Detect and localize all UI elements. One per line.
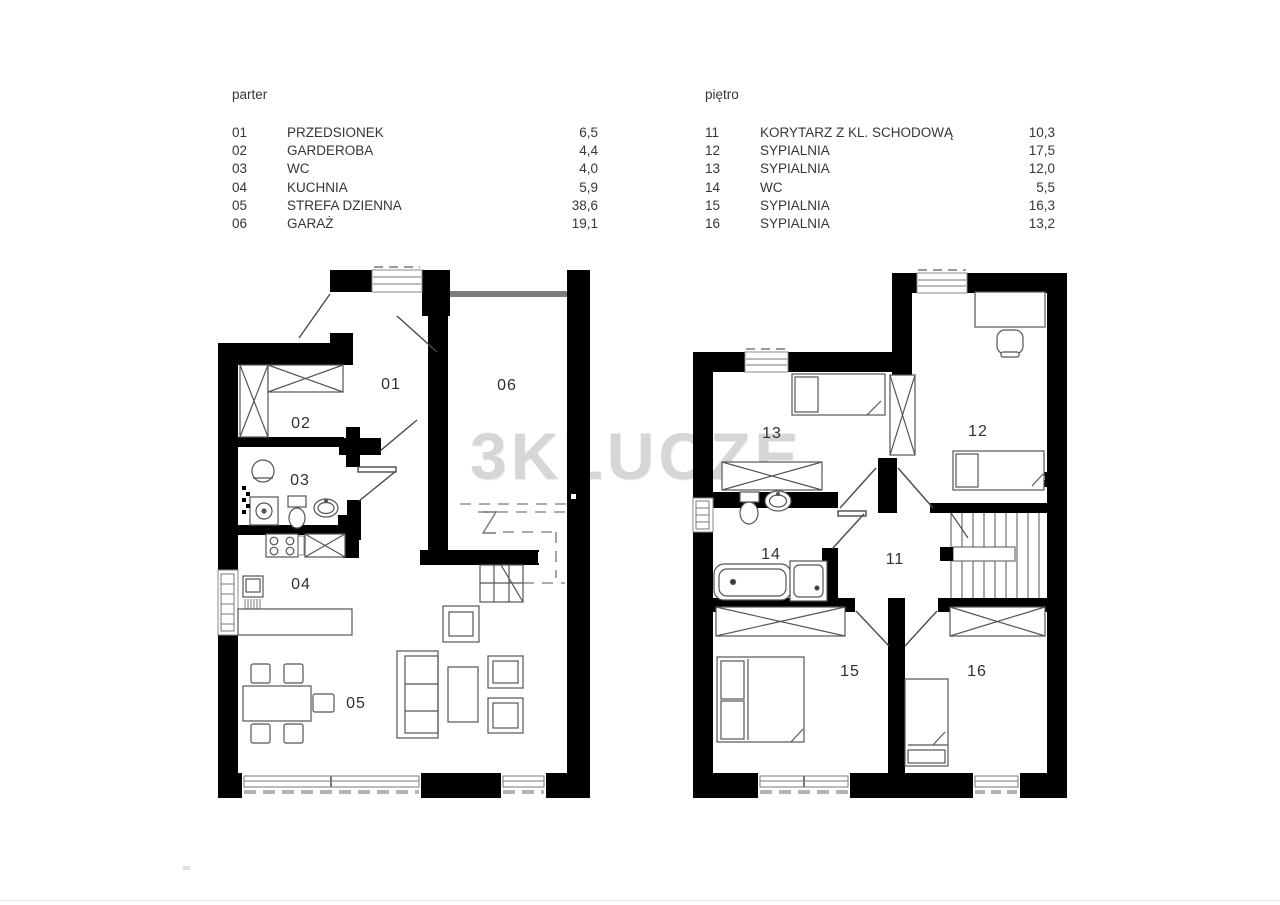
legend-row: 05STREFA DZIENNA38,6 — [232, 197, 598, 215]
legend-row: 01PRZEDSIONEK6,5 — [232, 124, 598, 142]
floorplan-parter: 01 02 03 04 05 06 — [210, 260, 610, 805]
room-label-01: 01 — [381, 376, 401, 393]
garage-door-line — [450, 291, 567, 297]
room-label-05: 05 — [346, 695, 366, 712]
floorplan-page: parter 01PRZEDSIONEK6,5 02GARDEROBA4,4 0… — [0, 0, 1280, 905]
legend-parter-rows: 01PRZEDSIONEK6,5 02GARDEROBA4,4 03WC4,0 … — [232, 124, 598, 233]
legend-pietro: piętro 11KORYTARZ Z KL. SCHODOWĄ10,3 12S… — [705, 88, 1055, 233]
room-label-13: 13 — [762, 425, 782, 442]
legend-row: 02GARDEROBA4,4 — [232, 142, 598, 160]
hatch — [245, 599, 260, 609]
legend-row: 11KORYTARZ Z KL. SCHODOWĄ10,3 — [705, 124, 1055, 142]
radiator-marks — [242, 486, 250, 514]
legend-pietro-title: piętro — [705, 88, 1055, 102]
legend-parter: parter 01PRZEDSIONEK6,5 02GARDEROBA4,4 0… — [232, 88, 598, 233]
legend-row: 06GARAŻ19,1 — [232, 215, 598, 233]
legend-row: 14WC5,5 — [705, 179, 1055, 197]
room-label-06: 06 — [497, 377, 517, 394]
room-label-03: 03 — [290, 472, 310, 489]
room-label-12: 12 — [968, 423, 988, 440]
stairs-parter — [480, 565, 523, 602]
legend-row: 04KUCHNIA5,9 — [232, 179, 598, 197]
doors — [299, 294, 437, 501]
room-label-16: 16 — [967, 663, 987, 680]
room-label-14: 14 — [761, 546, 781, 563]
floorplan-pietro: 11 12 13 14 15 16 — [685, 260, 1075, 805]
legend-row: 03WC4,0 — [232, 160, 598, 178]
legend-row: 15SYPIALNIA16,3 — [705, 197, 1055, 215]
artifact-dot — [183, 866, 190, 870]
legend-pietro-rows: 11KORYTARZ Z KL. SCHODOWĄ10,3 12SYPIALNI… — [705, 124, 1055, 233]
legend-parter-title: parter — [232, 88, 598, 102]
room-label-15: 15 — [840, 663, 860, 680]
legend-row: 13SYPIALNIA12,0 — [705, 160, 1055, 178]
garage-dashed-lines — [460, 504, 573, 583]
page-bottom-edge — [0, 900, 1280, 901]
stairs-pietro — [940, 513, 1039, 598]
room-label-02: 02 — [291, 415, 311, 432]
room-label-04: 04 — [291, 576, 311, 593]
legend-row: 16SYPIALNIA13,2 — [705, 215, 1055, 233]
chimney-vent-dot — [571, 494, 576, 499]
garage-wall-notch — [538, 552, 567, 563]
legend-row: 12SYPIALNIA17,5 — [705, 142, 1055, 160]
room-label-11: 11 — [886, 551, 905, 568]
